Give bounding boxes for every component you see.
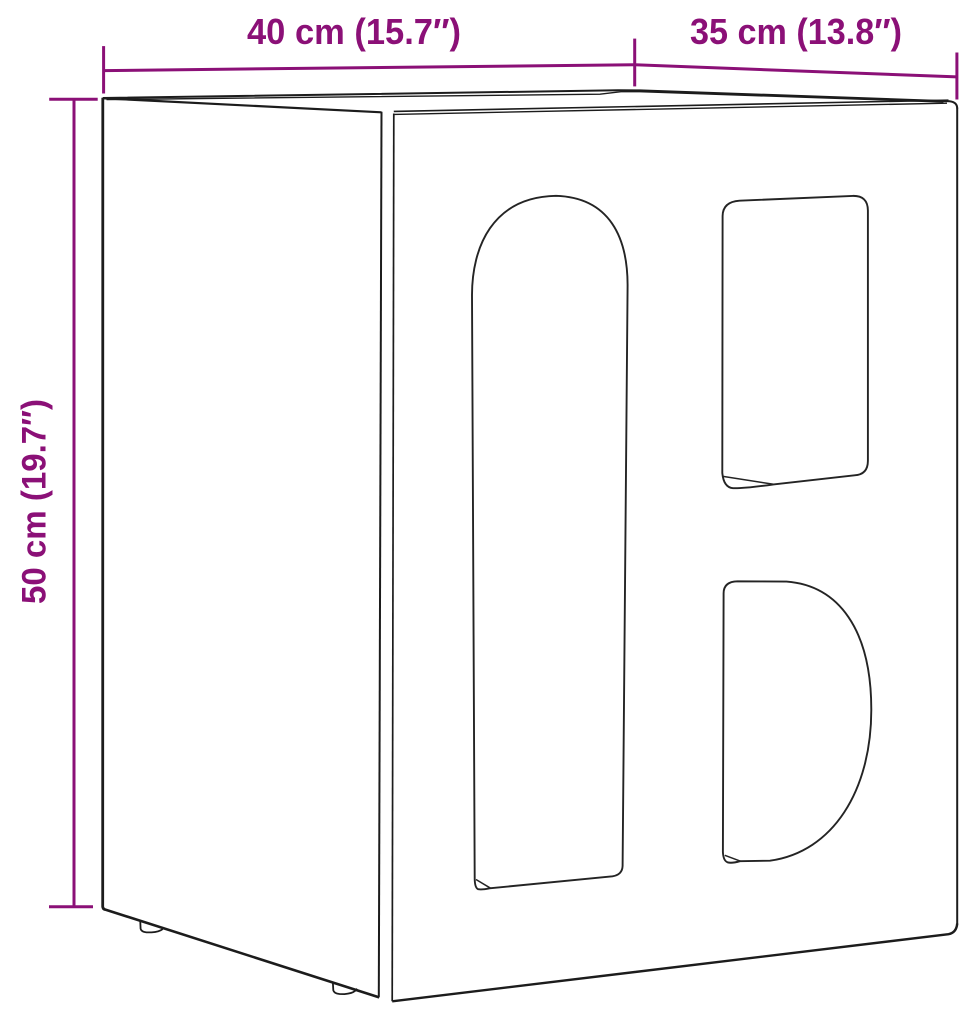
svg-text:35 cm (13.8″): 35 cm (13.8″) [690,11,902,52]
svg-text:40 cm (15.7″): 40 cm (15.7″) [247,11,461,52]
svg-text:50 cm (19.7″): 50 cm (19.7″) [16,399,54,604]
